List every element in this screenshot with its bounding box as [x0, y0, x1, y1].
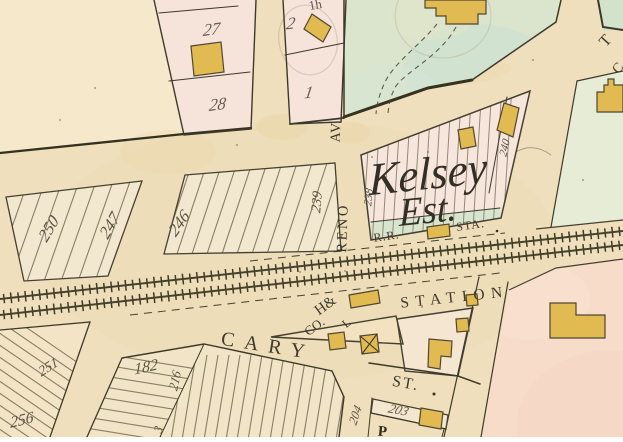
svg-text:P: P — [377, 424, 388, 437]
svg-text:28: 28 — [208, 94, 227, 116]
svg-text:Est.: Est. — [398, 185, 457, 235]
svg-text:1h: 1h — [308, 0, 324, 13]
svg-text:AV.: AV. — [329, 119, 345, 143]
svg-text:RENO: RENO — [334, 203, 352, 253]
svg-text:239: 239 — [308, 189, 325, 214]
